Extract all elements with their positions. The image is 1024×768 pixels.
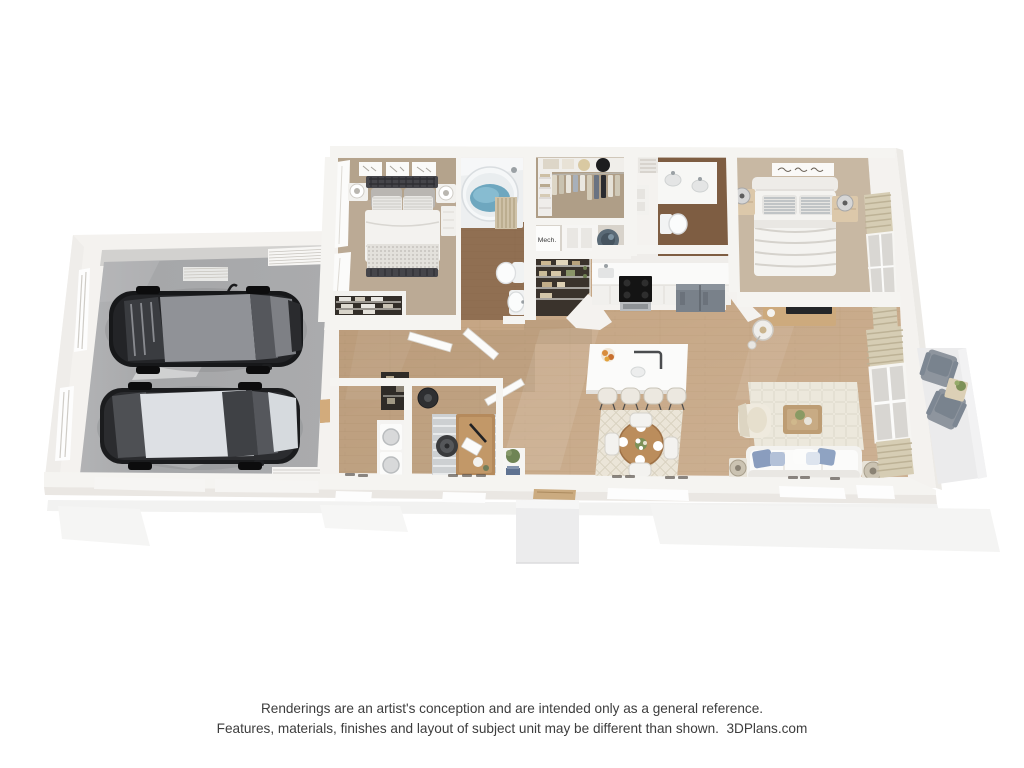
svg-text:Mech.: Mech.: [538, 237, 557, 244]
